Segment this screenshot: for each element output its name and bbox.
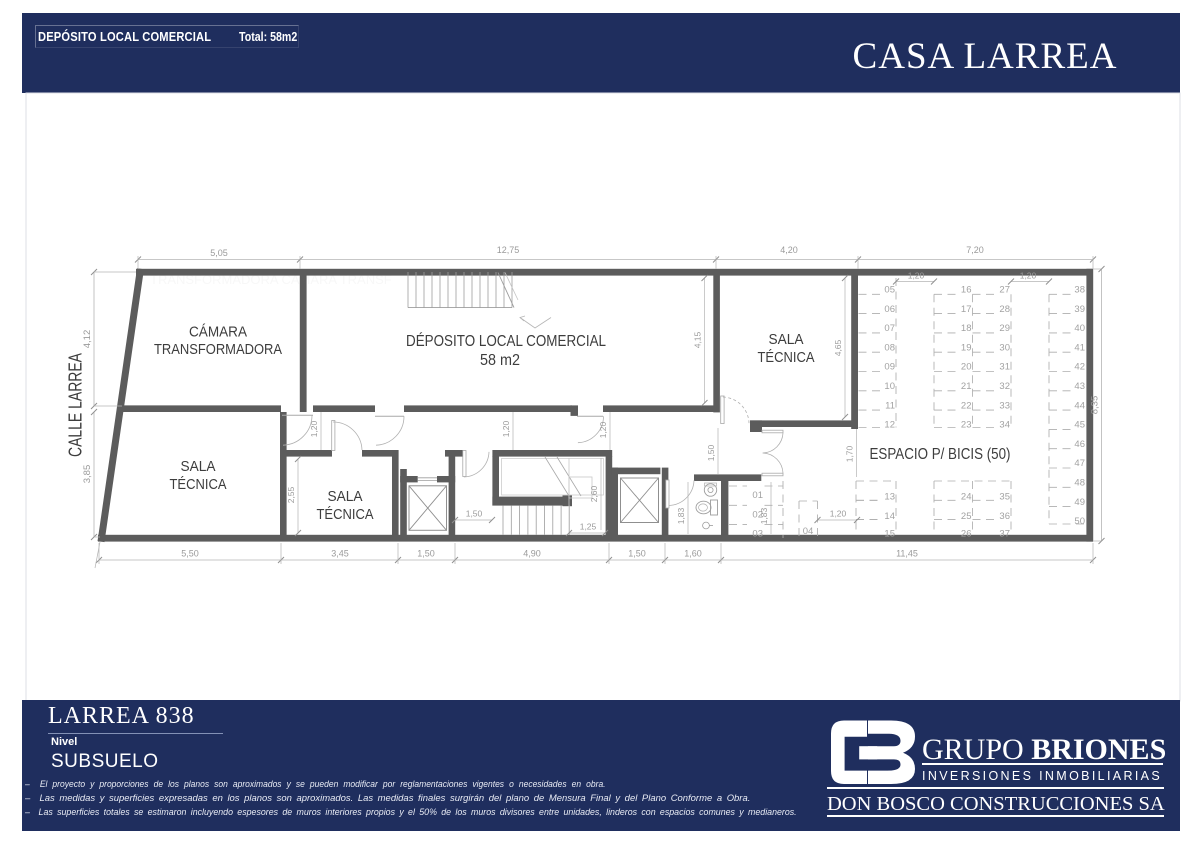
svg-text:43: 43 [1074, 381, 1085, 392]
svg-text:4,65: 4,65 [833, 339, 843, 356]
svg-text:8,35: 8,35 [1090, 396, 1101, 415]
svg-text:1,25: 1,25 [580, 522, 597, 532]
svg-text:07: 07 [884, 323, 895, 334]
svg-text:1,83: 1,83 [759, 507, 769, 524]
svg-text:4,12: 4,12 [82, 330, 93, 349]
svg-text:26: 26 [961, 528, 972, 539]
svg-text:25: 25 [961, 511, 972, 522]
svg-text:08: 08 [884, 342, 895, 353]
svg-text:31: 31 [999, 362, 1010, 373]
svg-text:1,20: 1,20 [908, 271, 925, 281]
svg-text:49: 49 [1074, 497, 1085, 508]
svg-text:09: 09 [884, 362, 895, 373]
svg-text:01: 01 [752, 490, 763, 501]
svg-text:1,60: 1,60 [684, 549, 702, 559]
svg-text:12,75: 12,75 [497, 245, 520, 255]
svg-text:CALLE LARREA: CALLE LARREA [66, 353, 86, 457]
svg-text:20: 20 [961, 362, 972, 373]
svg-text:1,20: 1,20 [1020, 271, 1037, 281]
svg-text:15: 15 [884, 528, 895, 539]
svg-text:34: 34 [999, 420, 1010, 431]
svg-text:1,50: 1,50 [628, 549, 646, 559]
svg-text:1,50: 1,50 [417, 549, 435, 559]
svg-text:04: 04 [803, 526, 814, 537]
svg-text:CÁMARA: CÁMARA [189, 324, 247, 341]
svg-text:SALA: SALA [769, 332, 804, 348]
svg-text:19: 19 [961, 342, 972, 353]
svg-text:36: 36 [999, 511, 1010, 522]
svg-text:TÉCNICA: TÉCNICA [170, 476, 227, 493]
svg-text:32: 32 [999, 381, 1010, 392]
svg-text:39: 39 [1074, 304, 1085, 315]
svg-text:SALA: SALA [181, 459, 216, 475]
svg-text:1,20: 1,20 [501, 420, 511, 437]
svg-text:35: 35 [999, 492, 1010, 503]
svg-text:4,15: 4,15 [693, 331, 703, 348]
svg-text:11,45: 11,45 [896, 549, 918, 559]
svg-text:58 m2: 58 m2 [480, 352, 520, 369]
svg-text:38: 38 [1074, 285, 1085, 296]
svg-text:TRANSFORMADORA CÁMARA TRANSF: TRANSFORMADORA CÁMARA TRANSF [150, 272, 392, 287]
svg-text:27: 27 [999, 285, 1010, 296]
svg-text:1,83: 1,83 [676, 507, 686, 524]
svg-text:TÉCNICA: TÉCNICA [758, 349, 815, 366]
svg-text:33: 33 [999, 400, 1010, 411]
svg-text:29: 29 [999, 323, 1010, 334]
svg-text:1,50: 1,50 [466, 509, 483, 519]
svg-text:28: 28 [999, 304, 1010, 315]
svg-text:TRANSFORMADORA: TRANSFORMADORA [154, 342, 282, 358]
svg-text:18: 18 [961, 323, 972, 334]
svg-text:17: 17 [961, 304, 972, 315]
svg-text:48: 48 [1074, 478, 1085, 489]
svg-text:11: 11 [885, 400, 895, 411]
svg-text:30: 30 [999, 342, 1010, 353]
svg-text:05: 05 [884, 285, 895, 296]
svg-text:45: 45 [1074, 420, 1085, 431]
svg-text:DÉPOSITO LOCAL COMERCIAL: DÉPOSITO LOCAL COMERCIAL [406, 333, 606, 350]
svg-text:1,20: 1,20 [830, 509, 847, 519]
svg-text:2,55: 2,55 [286, 486, 296, 503]
svg-text:5,05: 5,05 [210, 248, 228, 258]
svg-text:42: 42 [1074, 362, 1085, 373]
svg-text:1,20: 1,20 [598, 421, 608, 438]
svg-text:3,45: 3,45 [331, 549, 349, 559]
svg-text:4,20: 4,20 [780, 245, 798, 255]
svg-text:22: 22 [961, 400, 972, 411]
svg-text:21: 21 [961, 381, 972, 392]
svg-text:13: 13 [884, 492, 895, 503]
svg-text:23: 23 [961, 420, 972, 431]
svg-text:1,70: 1,70 [845, 445, 855, 462]
svg-text:TÉCNICA: TÉCNICA [317, 506, 374, 523]
svg-text:SALA: SALA [328, 489, 363, 505]
svg-text:47: 47 [1074, 458, 1085, 469]
svg-text:ESPACIO P/ BICIS (50): ESPACIO P/ BICIS (50) [870, 446, 1011, 463]
svg-text:46: 46 [1074, 439, 1085, 450]
svg-text:06: 06 [884, 304, 895, 315]
svg-text:3,85: 3,85 [82, 465, 93, 484]
svg-text:1,50: 1,50 [706, 444, 716, 461]
svg-text:03: 03 [752, 528, 763, 539]
svg-text:2,60: 2,60 [589, 485, 599, 502]
svg-text:10: 10 [884, 381, 895, 392]
svg-text:37: 37 [999, 528, 1010, 539]
svg-text:12: 12 [884, 420, 895, 431]
svg-text:14: 14 [884, 511, 895, 522]
svg-text:7,20: 7,20 [966, 245, 984, 255]
svg-text:41: 41 [1074, 342, 1085, 353]
svg-text:5,50: 5,50 [181, 549, 199, 559]
svg-text:50: 50 [1074, 516, 1085, 527]
svg-text:1,20: 1,20 [309, 420, 319, 437]
svg-text:4,90: 4,90 [523, 549, 541, 559]
svg-text:44: 44 [1074, 400, 1085, 411]
svg-text:24: 24 [961, 492, 972, 503]
svg-text:40: 40 [1074, 323, 1085, 334]
svg-text:16: 16 [961, 285, 972, 296]
